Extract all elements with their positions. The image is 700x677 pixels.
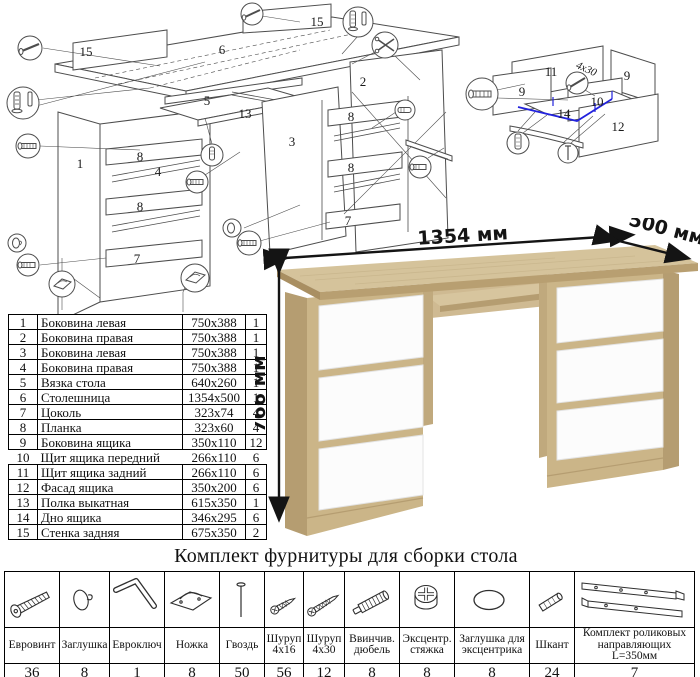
part-name: Цоколь <box>38 405 183 420</box>
part-name: Боковина левая <box>38 315 183 330</box>
part-label: 12 <box>612 119 625 134</box>
hardware-qty: 7 <box>575 663 695 677</box>
parts-row: 9Боковина ящика350x11012 <box>9 435 267 450</box>
part-number: 13 <box>9 495 38 510</box>
part-name: Столешница <box>38 390 183 405</box>
part-size: 266x110 <box>183 450 246 465</box>
part-size: 615x350 <box>183 495 246 510</box>
part-label: 13 <box>239 106 252 121</box>
part-name: Планка <box>38 420 183 435</box>
parts-row: 1Боковина левая750x3881 <box>9 315 267 330</box>
screw-callout-icon <box>566 72 588 94</box>
part-size: 350x200 <box>183 480 246 495</box>
crossed-screws-callout-icon <box>372 32 398 58</box>
part-label: 11 <box>545 64 558 79</box>
parts-row: 13Полка выкатная615x3501 <box>9 495 267 510</box>
part-label: 8 <box>137 199 144 214</box>
part-label: 8 <box>348 160 355 175</box>
parts-row: 8Планка323x604 <box>9 420 267 435</box>
hardware-name: Шуруп 4x16 <box>265 628 304 664</box>
hardware-qty: 24 <box>530 663 575 677</box>
hardware-qty: 36 <box>5 663 60 677</box>
drawer-slides-icon <box>576 575 692 625</box>
euro-screw-callout-icon <box>16 134 40 158</box>
part-size: 750x388 <box>183 315 246 330</box>
assembly-instruction-sheet: 15 6 15 1 8 4 8 7 5 13 3 2 8 8 7 <box>0 0 700 677</box>
part-size: 640x260 <box>183 375 246 390</box>
parts-row: 14Дно ящика346x2956 <box>9 510 267 525</box>
part-size: 350x110 <box>183 435 246 450</box>
part-number: 9 <box>9 435 38 450</box>
hardware-name: Евроключ <box>110 628 165 664</box>
dowel-pin-callout-icon <box>7 87 39 119</box>
part-label: 5 <box>204 93 211 108</box>
hardware-name: Эксцентр. стяжка <box>400 628 455 664</box>
part-label: 7 <box>134 251 141 266</box>
cam-lock-icon <box>401 575 451 625</box>
dowel-screw-callout-icon <box>507 132 529 154</box>
part-label: 15 <box>311 14 324 29</box>
part-label: 8 <box>137 149 144 164</box>
parts-row: 12Фасад ящика350x2006 <box>9 480 267 495</box>
part-name: Щит ящика передний <box>38 450 183 465</box>
screw-callout-icon <box>18 36 42 60</box>
parts-row: 11Щит ящика задний266x1106 <box>9 465 267 480</box>
parts-list-table: 1Боковина левая750x3881 2Боковина правая… <box>8 314 267 540</box>
hardware-name: Шкант <box>530 628 575 664</box>
part-size: 675x350 <box>183 525 246 540</box>
cap-icon <box>61 575 105 625</box>
part-label: 6 <box>219 42 226 57</box>
part-name: Щит ящика задний <box>38 465 183 480</box>
part-name: Стенка задняя <box>38 525 183 540</box>
part-number: 6 <box>9 390 38 405</box>
right-pedestal <box>547 270 679 488</box>
part-size: 750x388 <box>183 345 246 360</box>
part-name: Дно ящика <box>38 510 183 525</box>
hex-key-icon <box>111 575 161 625</box>
hardware-qty: 1 <box>110 663 165 677</box>
part-label: 9 <box>519 84 526 99</box>
drawer-assembly-diagram: 11 9 9 10 14 12 4x30 <box>455 0 700 205</box>
hardware-name: Ввинчив. дюбель <box>345 628 400 664</box>
hardware-qty: 8 <box>455 663 530 677</box>
hardware-name: Ножка <box>165 628 220 664</box>
dowel-icon <box>531 575 571 625</box>
dim-height-label: 766 мм <box>255 355 270 432</box>
foot-callout-icon <box>49 271 75 297</box>
part-size: 323x60 <box>183 420 246 435</box>
hardware-qtys-row: 36 8 1 8 50 56 12 8 8 8 24 7 <box>5 663 695 677</box>
part-label: 4 <box>155 164 162 179</box>
part-name: Боковина правая <box>38 360 183 375</box>
part-size: 1354x500 <box>183 390 246 405</box>
nail-icon <box>221 575 261 625</box>
screw-callout-icon <box>186 171 208 193</box>
screw-icon <box>305 575 343 625</box>
screw-callout-icon <box>241 3 263 25</box>
foot-callout-icon <box>181 264 209 292</box>
parts-row: 7Цоколь323x744 <box>9 405 267 420</box>
hardware-qty: 50 <box>220 663 265 677</box>
hardware-name: Заглушка <box>60 628 110 664</box>
hardware-name: Шуруп 4x30 <box>304 628 345 664</box>
dowel-pin-callout-icon <box>343 7 373 37</box>
part-size: 323x74 <box>183 405 246 420</box>
part-label: 3 <box>289 134 296 149</box>
euro-screw-callout-icon <box>466 78 498 110</box>
hardware-qty: 12 <box>304 663 345 677</box>
parts-row: 2Боковина правая750x3881 <box>9 330 267 345</box>
part-number: 3 <box>9 345 38 360</box>
foot-icon <box>166 575 216 625</box>
part-number: 12 <box>9 480 38 495</box>
part-size: 750x388 <box>183 330 246 345</box>
hardware-qty: 8 <box>60 663 110 677</box>
hardware-icons-row <box>5 572 695 628</box>
dowel-callout-icon <box>201 144 223 166</box>
part-number: 2 <box>9 330 38 345</box>
parts-row: 10Щит ящика передний266x1106 <box>9 450 267 465</box>
desk-render: 1354 мм 500 мм 766 мм <box>255 218 700 545</box>
dim-width-label: 1354 мм <box>417 222 509 249</box>
hardware-name: Заглушка для эксцентрика <box>455 628 530 664</box>
parts-row: 3Боковина левая750x3881 <box>9 345 267 360</box>
drawer-front <box>319 295 423 370</box>
parts-row: 4Боковина правая750x3881 <box>9 360 267 375</box>
screw-callout-icon <box>409 156 431 178</box>
hardware-name: Комплект роликовых направляющих L=350мм <box>575 628 695 664</box>
part-number: 15 <box>9 525 38 540</box>
parts-row: 15Стенка задняя675x3502 <box>9 525 267 540</box>
cap-callout-icon <box>8 234 26 252</box>
part-label: 1 <box>77 156 84 171</box>
hardware-names-row: Евровинт Заглушка Евроключ Ножка Гвоздь … <box>5 628 695 664</box>
part-number: 5 <box>9 375 38 390</box>
part-label: 10 <box>591 94 604 109</box>
dowel-callout-icon <box>395 100 415 120</box>
part-label: 9 <box>624 68 631 83</box>
part-name: Вязка стола <box>38 375 183 390</box>
parts-row: 5Вязка стола640x2601 <box>9 375 267 390</box>
dimension-height: 766 мм <box>255 270 279 518</box>
hardware-qty: 8 <box>165 663 220 677</box>
part-number: 1 <box>9 315 38 330</box>
part-number: 8 <box>9 420 38 435</box>
part-name: Боковина ящика <box>38 435 183 450</box>
part-size: 750x388 <box>183 360 246 375</box>
part-label: 15 <box>80 44 93 59</box>
hardware-qty: 56 <box>265 663 304 677</box>
screw-callout-icon <box>17 254 39 276</box>
part-label: 8 <box>348 109 355 124</box>
drawer-front <box>319 365 423 441</box>
part-number: 14 <box>9 510 38 525</box>
hardware-name: Евровинт <box>5 628 60 664</box>
part-label: 14 <box>558 106 572 121</box>
hardware-qty: 8 <box>400 663 455 677</box>
hardware-name: Гвоздь <box>220 628 265 664</box>
part-name: Фасад ящика <box>38 480 183 495</box>
screw-icon <box>266 575 302 625</box>
euro-screw-icon <box>6 575 54 625</box>
hardware-qty: 8 <box>345 663 400 677</box>
left-pedestal <box>285 286 423 536</box>
cover-cap-icon <box>456 575 522 625</box>
part-number: 10 <box>9 450 38 465</box>
part-name: Боковина левая <box>38 345 183 360</box>
part-label: 2 <box>360 74 367 89</box>
hardware-kit-title: Комплект фурнитуры для сборки стола <box>0 545 692 568</box>
part-name: Полка выкатная <box>38 495 183 510</box>
part-size: 266x110 <box>183 465 246 480</box>
nail-callout-icon <box>558 143 578 163</box>
part-number: 7 <box>9 405 38 420</box>
part-number: 4 <box>9 360 38 375</box>
part-size: 346x295 <box>183 510 246 525</box>
cap-callout-icon <box>223 219 241 237</box>
parts-row: 6Столешница1354x5001 <box>9 390 267 405</box>
hardware-kit-table: Евровинт Заглушка Евроключ Ножка Гвоздь … <box>4 571 695 677</box>
dowel-screw-icon <box>346 575 398 625</box>
part-name: Боковина правая <box>38 330 183 345</box>
part-number: 11 <box>9 465 38 480</box>
